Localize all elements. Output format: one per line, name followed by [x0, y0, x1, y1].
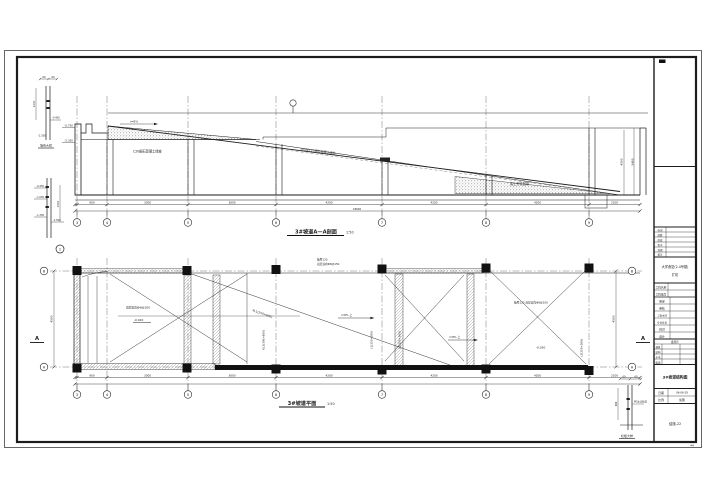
sheet-corner-note: 44 — [690, 444, 694, 448]
beam-label: L1(250×500) — [370, 331, 374, 349]
section-caption-scale: 1:50 — [346, 231, 354, 235]
section-cut-label: A — [641, 336, 645, 342]
scale-label: 比例 — [658, 397, 664, 402]
revision-row-label: 签字 — [657, 243, 663, 247]
grid-bubble-label: 7 — [381, 221, 383, 225]
detail-elev: -1.350 — [36, 214, 44, 217]
slab-note: 双层双向Φ8@150 — [317, 262, 340, 266]
revision-row-label: 日期 — [657, 248, 663, 252]
fill-note: 素土夯实回填 — [510, 181, 530, 186]
dim-text: 4200 — [325, 200, 332, 204]
sign-row-label: 结构 — [656, 350, 661, 354]
beam-label: L2(250×500) — [398, 331, 402, 349]
dim-text: 3600 — [228, 373, 235, 377]
dim-text: 2100 — [611, 200, 618, 204]
title-block: 标记 处数 修改 签字 日期 备注 大学食堂(2-4号楼) 扩初 工程名称 工程… — [654, 60, 696, 427]
detail-elev: -2.350 — [38, 135, 46, 138]
section-grid-bubbles: 3 4 5 6 7 8 9 — [73, 219, 593, 227]
beam-label: KL3(300×600) — [262, 330, 266, 350]
staff-row-label: 设计 — [659, 334, 665, 338]
dim-text: 900 — [89, 373, 95, 377]
detail-dim: 1200 — [32, 100, 36, 107]
plan-view: 双层双向Φ8@200 -0.020 板厚120 双层双向Φ8@150 XL1(2… — [30, 258, 650, 408]
staff-row-label: 校对 — [659, 328, 665, 332]
dim-total: 18600 — [353, 207, 362, 211]
staff-row-label: 审核 — [659, 307, 665, 311]
detail-elev: -1.500 — [53, 219, 61, 222]
plan-grid-lines — [50, 258, 642, 390]
staff-row-label: 审定 — [659, 300, 665, 304]
elev-bottom: -2.350 — [64, 138, 73, 142]
up-note: i=8% 上 — [341, 313, 352, 317]
detail-dim: 60 — [622, 376, 626, 379]
right-dim-inner: 4500 — [620, 158, 624, 165]
date-value: 06-06-28 — [676, 391, 688, 395]
plan-structure — [73, 264, 641, 376]
detail-dim: 60 — [634, 376, 638, 379]
detail-elev: -0.450 — [36, 185, 44, 188]
section-grid-lines — [77, 96, 589, 217]
dim-text: 4200 — [534, 373, 541, 377]
title-block-mark — [659, 60, 666, 64]
sign-row-label: 水电 — [656, 355, 661, 359]
elev-top: -0.750 — [64, 123, 73, 127]
scale-value: 如图 — [679, 398, 685, 402]
right-dim-outer: 5400 — [631, 158, 635, 165]
revision-row-label: 修改 — [657, 238, 663, 242]
dim-text: 4200 — [430, 200, 437, 204]
date-label: 日期 — [658, 390, 664, 395]
section-dimensions: 900 3300 3600 4200 4200 4200 2100 18600 — [73, 200, 641, 226]
grid-bubble-label: 5 — [187, 393, 189, 397]
dim-text: 3300 — [144, 200, 151, 204]
sheet-number: 结施-22 — [669, 421, 681, 426]
drawing-title: 3#坡道结构图 — [663, 375, 688, 380]
topping-note: C20细石混凝土找坡 — [133, 149, 162, 154]
detail-elev: -1.050 — [36, 196, 44, 199]
dim-text: 4200 — [534, 200, 541, 204]
revision-row-label: 标记 — [657, 228, 663, 232]
section-caption-text: 3#坡道A—A剖面 — [295, 228, 337, 236]
info-row-label: 工程名称 — [656, 285, 667, 289]
plan-grid-bubbles: 3 4 5 6 7 8 9 — [73, 391, 593, 399]
dim-text: 900 — [89, 200, 95, 204]
section-cut-label: A — [35, 336, 39, 342]
elev-note: -0.020 — [134, 318, 143, 322]
grid-bubble-label: 3 — [76, 393, 78, 397]
revision-row-label: 备注 — [657, 253, 663, 257]
rebar-note: 双层双向Φ8@200 — [126, 305, 150, 310]
beam-label: XL1(250×600) — [252, 308, 273, 319]
plan-dimensions: 900 3300 3600 4200 4200 4200 2100 3 — [73, 373, 641, 398]
up-note: i=8% 上 — [449, 335, 460, 339]
dim-text: 2100 — [611, 373, 618, 377]
project-name: 大学食堂(2-4号楼) — [662, 264, 689, 269]
dim-text: 4200 — [430, 373, 437, 377]
datum-symbol-icon — [290, 100, 296, 113]
detail-dim: 1500 — [56, 200, 60, 207]
staff-row-label: 工程主持 — [657, 314, 668, 318]
staff-row-label: 专业负责 — [657, 321, 668, 325]
grid-bubble-label: 3 — [76, 221, 78, 225]
detail-3: 60 60 900 M5水泥砂浆 栏板大样 — [615, 376, 648, 439]
detail-label: 墙身大样 — [40, 143, 52, 148]
slope-label: i=8% — [130, 120, 138, 124]
cad-drawing-sheet: 44 — [0, 0, 706, 500]
slab-note: 板厚120 双层双向Φ8@200 — [514, 301, 548, 305]
revision-row-label: 处数 — [657, 233, 663, 237]
sign-row-label: 暖通 — [656, 360, 661, 364]
dim-text: 3600 — [228, 200, 235, 204]
plan-row-bubbles: B A B A — [40, 267, 636, 371]
project-name: 扩初 — [672, 272, 678, 277]
dim-text: 4500 — [50, 315, 54, 322]
section-view: i=8% 100厚C25细石混凝土面层 C20细石混凝土找坡 素土夯实回填 -0… — [62, 96, 648, 236]
info-row-label: 工程编号 — [656, 292, 667, 296]
grid-bubble-label: 7 — [381, 393, 383, 397]
section-caption: 3#坡道A—A剖面 1:50 — [287, 228, 354, 236]
detail-2: -0.450 -1.050 -1.350 1500 -1.500 1 — [34, 178, 64, 253]
detail-dim: 60 — [42, 76, 46, 79]
dim-text: 4500 — [612, 315, 616, 322]
grid-bubble-label: 5 — [187, 221, 189, 225]
detail-dim: 60 — [51, 76, 55, 79]
elev-note: -0.050 — [536, 346, 545, 350]
detail-ref-bubble: 1 — [59, 247, 61, 251]
plan-caption-text: 3#坡道平面 — [288, 399, 317, 407]
beam-label: L3(250×500) — [580, 339, 584, 357]
section-structure — [75, 124, 646, 208]
surface-note: 100厚C25细石混凝土面层 — [300, 146, 336, 155]
detail-elev: -0.450 — [52, 117, 60, 120]
detail-1: 60 60 1200 -0.450 -2.350 墙身大样 — [32, 76, 61, 148]
sign-row-label: 建筑 — [656, 345, 661, 349]
dim-text: 3300 — [144, 373, 151, 377]
detail-dim: 900 — [615, 401, 618, 406]
plan-caption: 3#坡道平面 1:50 — [279, 399, 335, 407]
dim-text: 4200 — [325, 373, 332, 377]
detail-note: M5水泥砂浆 — [634, 400, 648, 404]
sheet-frame: 44 — [5, 51, 702, 448]
sign-header: 会签栏 — [671, 340, 679, 344]
drawing-canvas: 44 — [0, 0, 706, 500]
plan-caption-scale: 1:50 — [327, 402, 335, 406]
detail-label: 栏板大样 — [621, 433, 633, 438]
title-block-texts: 标记 处数 修改 签字 日期 备注 大学食堂(2-4号楼) 扩初 工程名称 工程… — [656, 228, 689, 426]
